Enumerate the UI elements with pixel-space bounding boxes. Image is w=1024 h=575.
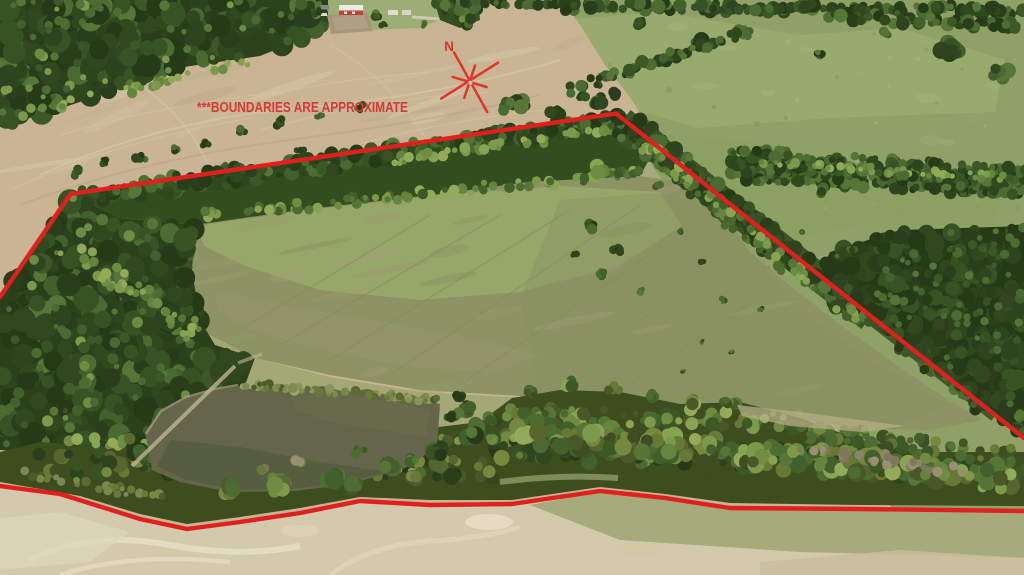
svg-text:***BOUNDARIES ARE APPROXIMATE: ***BOUNDARIES ARE APPROXIMATE <box>197 100 408 116</box>
svg-text:N: N <box>444 39 454 54</box>
